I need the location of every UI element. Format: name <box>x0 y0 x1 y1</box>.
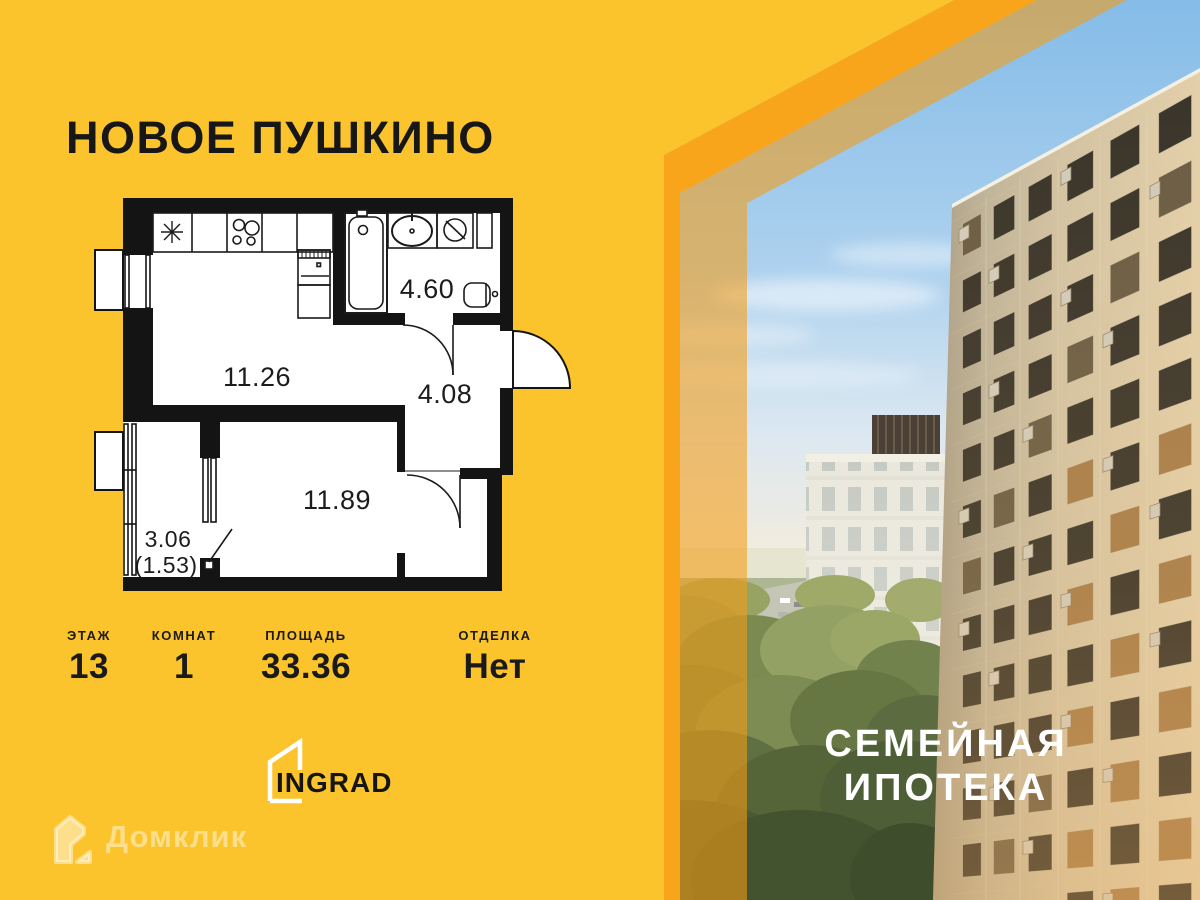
sink-star-icon <box>161 221 183 243</box>
stat-area-label: ПЛОЩАДЬ <box>236 628 376 643</box>
mortgage-badge-line2: ИПОТЕКА <box>779 766 1113 810</box>
watermark: Домклик <box>46 810 306 870</box>
stat-rooms-label: КОМНАТ <box>114 628 254 643</box>
mortgage-badge-line1: СЕМЕЙНАЯ <box>779 722 1113 766</box>
domklik-house-icon <box>46 812 94 864</box>
developer-logo: INGRAD <box>263 737 413 807</box>
mortgage-badge: СЕМЕЙНАЯ ИПОТЕКА <box>779 722 1113 810</box>
entrance-door-swing <box>513 331 570 388</box>
listing-card: СЕМЕЙНАЯ ИПОТЕКА НОВОЕ ПУШКИНО <box>0 0 1200 900</box>
watermark-text: Домклик <box>106 819 247 855</box>
area-balcony-coefficient: (1.53) <box>134 552 197 578</box>
stat-area-value: 33.36 <box>236 647 376 687</box>
developer-logo-text: INGRAD <box>276 767 392 799</box>
window-ledge-lower <box>95 432 123 490</box>
area-room: 11.89 <box>303 485 371 515</box>
stat-rooms: КОМНАТ 1 <box>114 628 254 687</box>
area-bathroom: 4.60 <box>400 274 455 304</box>
area-hallway: 4.08 <box>418 379 473 409</box>
project-title: НОВОЕ ПУШКИНО <box>66 112 495 164</box>
frame-yellow-sliver <box>660 150 664 900</box>
stat-finishing-value: Нет <box>425 647 565 687</box>
stat-finishing: ОТДЕЛКА Нет <box>425 628 565 687</box>
window-ledge-upper <box>95 250 123 310</box>
area-kitchen-living: 11.26 <box>223 362 291 392</box>
floor-plan: 11.26 4.60 4.08 11.89 3.06 (1.53) <box>88 196 580 600</box>
stat-rooms-value: 1 <box>114 647 254 687</box>
stat-finishing-label: ОТДЕЛКА <box>425 628 565 643</box>
stat-area: ПЛОЩАДЬ 33.36 <box>236 628 376 687</box>
area-balcony: 3.06 <box>145 526 192 552</box>
